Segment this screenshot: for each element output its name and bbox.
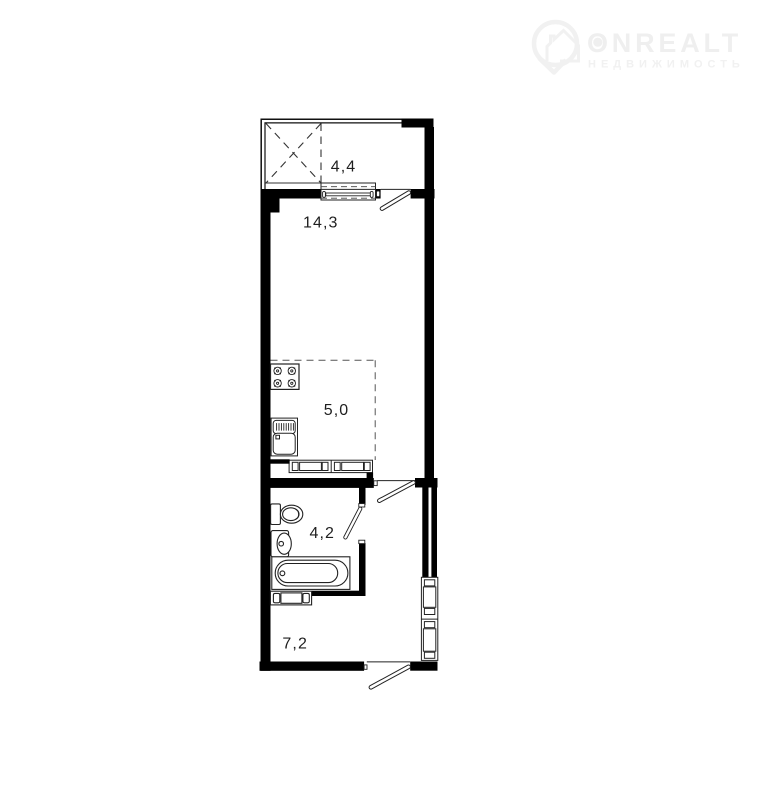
- svg-text:ONREALT: ONREALT: [587, 28, 742, 58]
- svg-text:4,4: 4,4: [331, 159, 357, 176]
- svg-text:5,0: 5,0: [324, 402, 350, 419]
- svg-text:14,3: 14,3: [303, 215, 339, 232]
- svg-text:4,2: 4,2: [310, 525, 336, 542]
- svg-text:НЕДВИЖИМОСТЬ: НЕДВИЖИМОСТЬ: [588, 59, 745, 71]
- svg-text:7,2: 7,2: [282, 636, 308, 653]
